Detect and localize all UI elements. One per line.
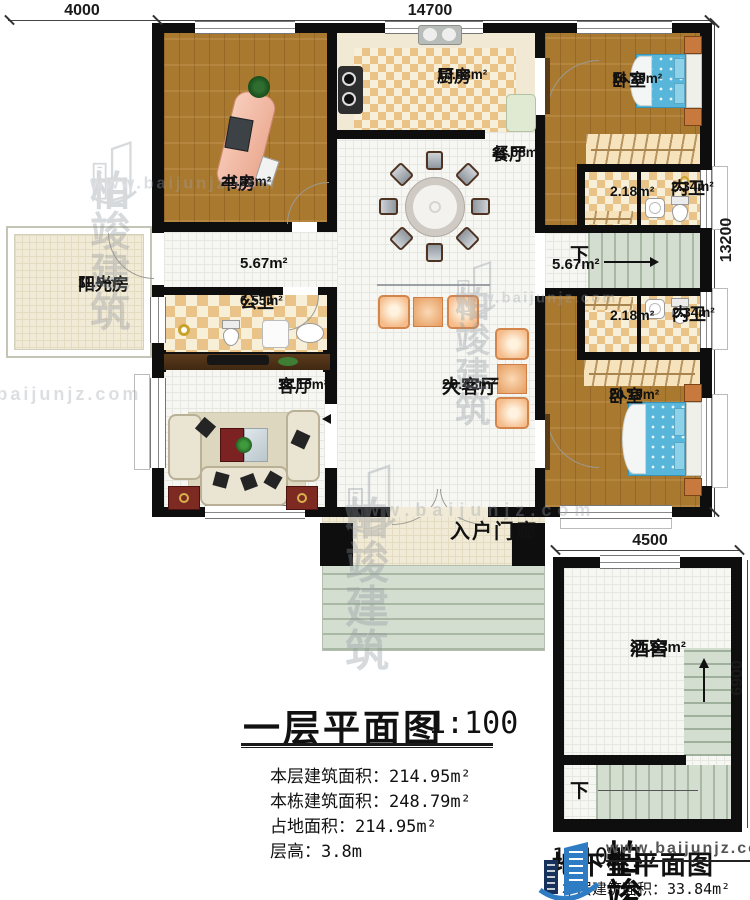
bedroom-2-door-leaf	[545, 414, 550, 470]
window	[150, 297, 166, 343]
window	[577, 21, 672, 34]
stat-building-area: 本栋建筑面积：248.79m²	[270, 787, 471, 812]
wall	[152, 222, 292, 232]
stat-floor-height: 层高：3.8m	[270, 837, 362, 862]
window	[195, 21, 295, 34]
bath-lamp	[178, 324, 190, 336]
wall	[545, 288, 710, 296]
nightstand	[684, 478, 702, 496]
bath-sink	[296, 323, 324, 343]
kitchen-fridge	[506, 94, 536, 132]
floor-plan-canvas: 4000 14700 13200	[0, 0, 750, 900]
sink-basin	[442, 28, 456, 41]
wall	[564, 755, 686, 765]
bedroom-1-door-leaf	[545, 58, 550, 114]
watermark-logo-icon	[90, 140, 138, 204]
stat-floor-area: 本层建筑面积：214.95m²	[270, 762, 471, 787]
closet-1-hangers	[583, 211, 633, 224]
grand-living-screen-line	[377, 284, 490, 286]
cellar-stairs-arrow	[699, 658, 709, 668]
dimension-cellar-right: 6900	[729, 660, 747, 696]
window	[600, 555, 680, 569]
porch-door-opening	[390, 507, 488, 517]
bed-blanket	[622, 404, 646, 474]
dimension-right-main: 13200	[718, 218, 736, 263]
stairs-direction-line	[604, 261, 652, 263]
wardrobe-1	[586, 134, 700, 164]
sink-basin	[423, 28, 437, 41]
toilet-bowl	[672, 204, 688, 222]
stairs-direction-arrow	[650, 257, 659, 267]
wall	[325, 468, 337, 517]
bath-sink	[645, 198, 665, 218]
bed-pillow	[674, 83, 685, 104]
stove-burner	[342, 72, 356, 86]
side-table	[413, 297, 443, 327]
toilet-bowl	[223, 328, 239, 346]
brand-logo: 柏竣建筑 www.baijunjz.com	[538, 840, 606, 900]
wall	[577, 352, 710, 360]
study-plant	[248, 76, 270, 98]
bed-headboard	[686, 402, 702, 476]
bed-headboard	[686, 54, 702, 108]
wall	[553, 819, 742, 832]
dimension-top-main: 14700	[408, 2, 453, 20]
armchair	[447, 295, 479, 329]
cellar-down-label: 下	[570, 776, 589, 803]
coffee-table-plant	[236, 437, 252, 453]
sofa-chaise-left	[168, 414, 202, 480]
dining-chair	[379, 198, 398, 215]
stat-footprint-area: 占地面积：214.95m²	[270, 812, 437, 837]
armchair	[495, 397, 529, 429]
window-sill	[712, 394, 728, 488]
wall	[535, 115, 545, 233]
dimension-line	[8, 20, 157, 21]
brand-logo-icon	[538, 840, 600, 900]
title-underline	[241, 743, 493, 748]
cellar-down-line	[598, 790, 698, 791]
wall	[535, 468, 545, 517]
dining-chair	[426, 151, 443, 170]
cellar-stairs-bottom	[596, 765, 731, 819]
nightstand	[684, 108, 702, 126]
wall	[535, 33, 545, 58]
wall	[637, 296, 641, 352]
porch-pillar-left	[320, 523, 353, 566]
cellar-stairs-line	[703, 668, 705, 702]
dining-chair	[471, 198, 490, 215]
kitchen-floor-checker	[354, 48, 516, 132]
end-table-lamp	[179, 493, 189, 503]
side-table	[497, 364, 527, 394]
wall	[577, 296, 585, 352]
dimension-line	[555, 550, 740, 551]
bed-pillow	[674, 58, 685, 79]
dimension-line	[747, 560, 748, 828]
window-sill	[134, 374, 150, 470]
armchair	[495, 328, 529, 360]
wall	[577, 164, 710, 172]
bed-pillow	[674, 408, 685, 436]
wall	[577, 164, 585, 233]
window	[560, 505, 672, 519]
living-entry-arrow	[322, 414, 331, 424]
stove-burner	[342, 92, 356, 106]
armchair	[378, 295, 410, 329]
porch-steps	[322, 565, 545, 651]
toilet	[222, 320, 240, 347]
stairs-down-label: 下	[570, 240, 589, 267]
bed-pillow	[674, 442, 685, 470]
dimension-cellar-top: 4500	[632, 532, 668, 550]
nightstand	[684, 384, 702, 402]
wardrobe-2	[584, 360, 700, 386]
wall	[337, 130, 485, 139]
dimension-top-left: 4000	[64, 2, 100, 20]
tv	[207, 355, 269, 365]
dining-chair	[426, 243, 443, 262]
window	[150, 378, 166, 468]
wall	[553, 557, 564, 832]
wall	[535, 296, 545, 420]
washing-machine	[262, 320, 289, 348]
plan-scale: 1:100	[428, 706, 518, 741]
dining-table-center	[429, 201, 441, 213]
end-table-lamp	[297, 493, 307, 503]
wall	[152, 23, 164, 233]
toilet	[671, 196, 689, 223]
nightstand	[684, 36, 702, 54]
tv-plant	[278, 357, 298, 366]
wall	[545, 225, 710, 233]
